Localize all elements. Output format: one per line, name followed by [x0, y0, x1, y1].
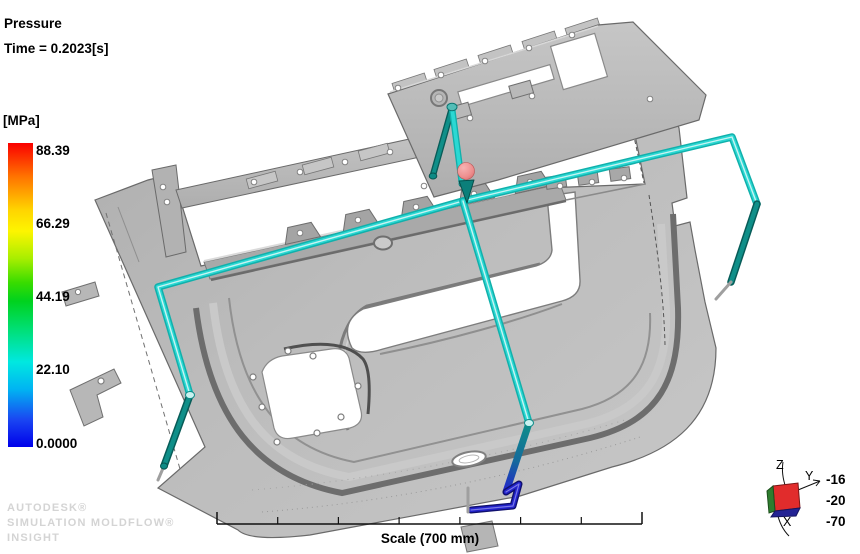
legend-unit-label: [MPa]	[3, 113, 40, 128]
axis-y-label: Y	[805, 469, 813, 483]
model-viewport[interactable]	[0, 0, 860, 554]
rotation-value-y: -20	[826, 493, 846, 508]
axis-x-label: X	[783, 515, 791, 529]
axis-z-label: Z	[776, 458, 784, 472]
moldflow-result-canvas: Pressure Time = 0.2023[s] [MPa] 88.39 66…	[0, 0, 860, 554]
scale-bar-label: Scale (700 mm)	[330, 531, 530, 546]
watermark-line-2: SIMULATION MOLDFLOW®	[7, 516, 175, 531]
watermark-line-1: AUTODESK®	[7, 501, 175, 516]
legend-tick-75: 66.29	[36, 216, 70, 232]
legend-tick-min: 0.0000	[36, 436, 77, 452]
brand-watermark: AUTODESK® SIMULATION MOLDFLOW® INSIGHT	[7, 501, 175, 546]
watermark-line-3: INSIGHT	[7, 531, 175, 546]
result-title: Pressure	[4, 16, 62, 31]
rotation-value-z: -70	[826, 514, 846, 529]
left-mount-brackets	[62, 282, 121, 426]
legend-tick-25: 22.10	[36, 362, 70, 378]
legend-tick-50: 44.19	[36, 289, 70, 305]
legend-tick-max: 88.39	[36, 143, 70, 159]
result-time-label: Time = 0.2023[s]	[4, 41, 108, 56]
rotation-value-x: -16	[826, 472, 846, 487]
legend-colorbar	[8, 143, 33, 447]
